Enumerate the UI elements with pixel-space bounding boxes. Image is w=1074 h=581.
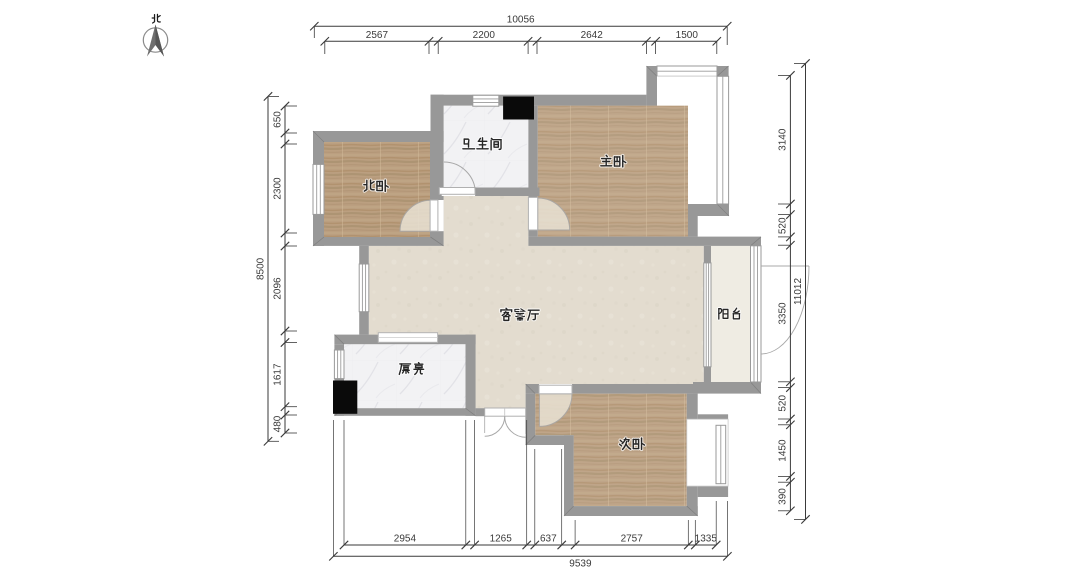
- svg-text:2300: 2300: [273, 177, 284, 200]
- svg-text:2096: 2096: [273, 277, 284, 300]
- svg-text:2757: 2757: [621, 534, 644, 545]
- svg-text:1335: 1335: [695, 534, 718, 545]
- svg-text:11012: 11012: [793, 278, 804, 306]
- svg-text:8500: 8500: [256, 257, 267, 280]
- svg-text:520: 520: [778, 395, 789, 412]
- svg-text:3350: 3350: [778, 302, 789, 325]
- svg-text:2200: 2200: [473, 30, 496, 41]
- svg-text:10056: 10056: [507, 15, 535, 26]
- svg-text:2567: 2567: [366, 30, 389, 41]
- svg-text:480: 480: [273, 415, 284, 432]
- svg-text:1450: 1450: [778, 439, 789, 462]
- svg-text:1500: 1500: [676, 30, 699, 41]
- svg-text:3140: 3140: [778, 128, 789, 151]
- svg-text:1265: 1265: [490, 534, 513, 545]
- svg-text:2642: 2642: [581, 30, 604, 41]
- svg-text:650: 650: [273, 111, 284, 128]
- svg-text:2954: 2954: [394, 534, 417, 545]
- svg-text:520: 520: [778, 217, 789, 234]
- svg-text:390: 390: [778, 488, 789, 505]
- svg-text:9539: 9539: [569, 559, 592, 570]
- svg-text:1617: 1617: [273, 363, 284, 386]
- svg-text:637: 637: [540, 534, 557, 545]
